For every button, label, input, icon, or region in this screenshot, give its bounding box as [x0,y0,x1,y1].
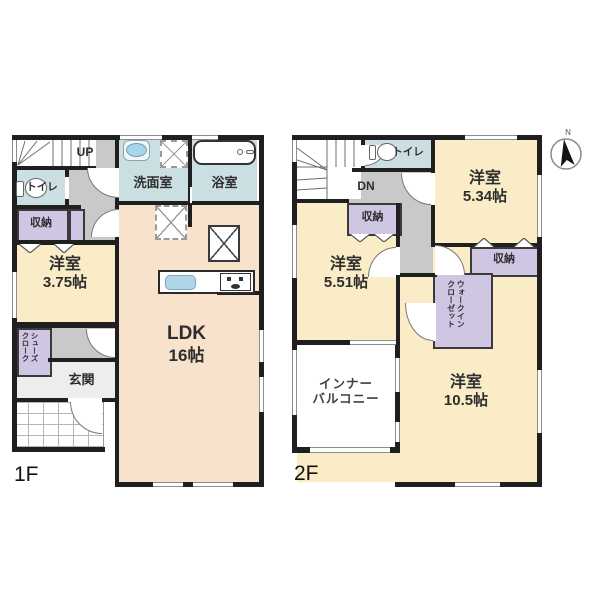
window-marker [153,482,183,487]
bedroom-534-label: 洋室 5.34帖 [433,169,537,206]
door-gap [396,247,400,275]
pantry-space-icon [155,205,187,240]
shoe-cloak-line1: シューズ [30,332,39,372]
room-name: 洋室 [296,255,396,274]
hallway-strip [400,203,433,273]
kitchen-sink-icon [165,275,196,290]
window-marker [292,140,297,162]
window-marker [193,482,233,487]
shoe-cloak-line2: クローク [21,332,30,372]
room-size: 16帖 [129,346,244,366]
wall [398,273,437,277]
entrance-label: 玄関 [48,372,115,388]
balcony-line1: インナー [297,377,395,392]
wall [188,205,192,227]
storage-hall-label: 収納 [347,211,398,224]
wall [259,135,264,487]
bedroom-375-label: 洋室 3.75帖 [17,255,113,292]
window-marker [537,370,542,433]
window-marker [310,447,390,453]
wall [12,166,96,170]
wall [12,447,105,452]
room-size: 10.5帖 [410,392,522,410]
washroom-sink-icon [123,140,150,161]
storage-label: 収納 [17,217,65,230]
room-size: 5.34帖 [433,188,537,206]
stairs-up-label: UP [70,145,100,159]
wic-line1: ウォークイン [456,280,466,340]
window-marker [395,358,400,392]
room-size: 5.51帖 [296,274,396,292]
floor1-plan: UP トイレ 収納 洗面室 浴室 洋室 3.75帖 LDK 16帖 シューズ ク… [12,135,264,489]
toilet-label: トイレ [386,146,430,159]
bathtub-icon [193,140,256,165]
refrigerator-space-icon [208,225,240,262]
closet-door-hook [474,238,494,247]
wall [115,201,259,205]
compass: N [544,122,588,178]
room-name: 洋室 [433,169,537,188]
washroom-label: 洗面室 [117,175,189,191]
wall [12,205,81,209]
toilet-label: トイレ [20,181,64,194]
wall [292,199,349,203]
bathroom-label: 浴室 [192,175,257,191]
floor2-label: 2F [294,461,334,486]
closet-door-hook [54,244,74,253]
door-gap [433,303,436,341]
wall [115,482,264,487]
closet-door-hook [350,234,370,242]
room-name: 洋室 [17,255,113,274]
floor2-plan: DN トイレ 収納 収納 洋室 5.34帖 洋室 5.51帖 洋室 10.5帖 … [292,135,542,487]
floor-plan-image: UP トイレ 収納 洗面室 浴室 洋室 3.75帖 LDK 16帖 シューズ ク… [0,0,600,600]
walk-in-closet-label: ウォークイン クローゼット [446,280,465,340]
shoe-cloak-label: シューズ クローク [21,332,39,372]
wall [48,358,115,362]
window-marker [259,377,264,412]
door-gap [65,177,69,199]
balcony-line2: バルコニー [297,392,395,407]
porch-edge [103,402,104,447]
window-marker [537,175,542,237]
room-name: 洋室 [410,373,522,392]
floor1-label: 1F [14,462,54,487]
room-size: 3.75帖 [17,274,113,292]
window-marker [465,135,517,140]
wall [352,168,435,172]
window-marker [259,330,264,362]
storage-bedroom-label: 収納 [470,253,538,266]
ldk-label: LDK 16帖 [129,323,244,366]
closet-door-hook [514,238,534,247]
window-marker [395,422,400,442]
window-marker [350,340,396,345]
wall [12,322,115,328]
kitchen-counter [158,270,255,294]
window-marker [12,140,17,162]
bedroom-551-label: 洋室 5.51帖 [296,255,396,292]
inner-balcony-label: インナー バルコニー [297,377,395,407]
room-name: LDK [129,323,244,346]
compass-north-label: N [565,128,571,137]
washer-space-icon [160,140,188,168]
bedroom-105-label: 洋室 10.5帖 [410,373,522,410]
window-marker [455,482,500,487]
closet-storage-small [69,209,85,242]
closet-door-hook [374,234,394,242]
stairs-down-label: DN [350,179,382,193]
wic-line2: クローゼット [446,280,456,340]
closet-door-hook [19,244,41,253]
stove-icon [220,273,251,291]
